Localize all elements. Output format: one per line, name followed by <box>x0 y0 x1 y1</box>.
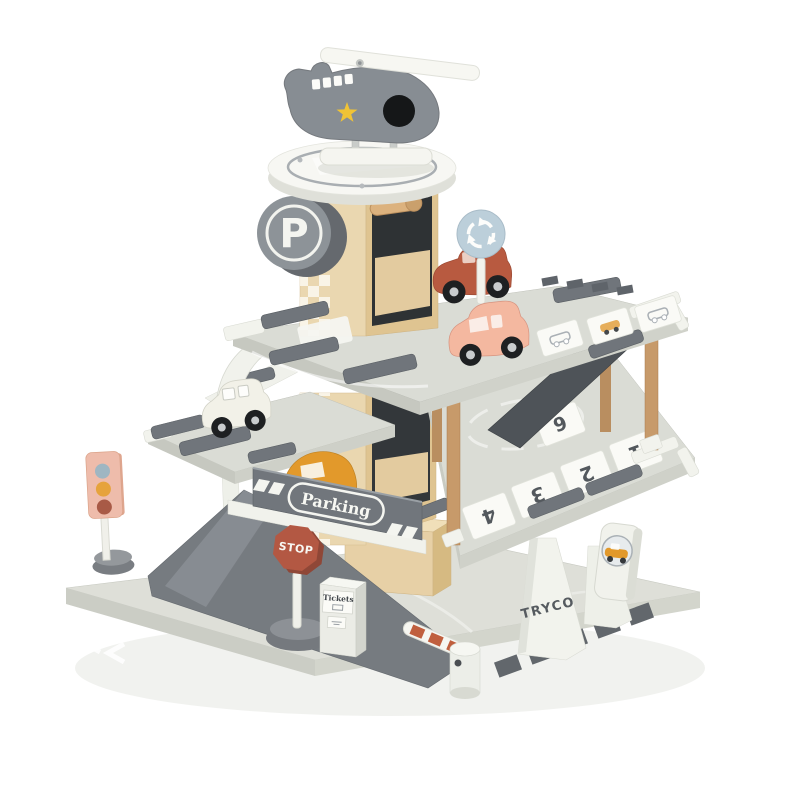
pillar <box>447 402 460 545</box>
elevator-car <box>375 250 430 316</box>
ticket-machine: Tickets <box>320 577 366 657</box>
svg-text:P: P <box>279 211 308 257</box>
round-window <box>383 95 415 127</box>
product-photo: Wooden toy parking garage playset with h… <box>0 0 800 800</box>
barrier-post <box>450 642 480 699</box>
pillar <box>645 332 658 450</box>
sign-pole <box>293 572 301 628</box>
tower-p-sign: P <box>257 196 347 277</box>
toy-parking-garage-illustration: Wooden toy parking garage playset with h… <box>0 0 800 800</box>
helicopter-body <box>284 63 439 143</box>
sign-pole <box>101 518 110 560</box>
sign-pole <box>477 258 485 304</box>
landing-skid <box>320 148 432 165</box>
traffic-light <box>86 451 135 576</box>
